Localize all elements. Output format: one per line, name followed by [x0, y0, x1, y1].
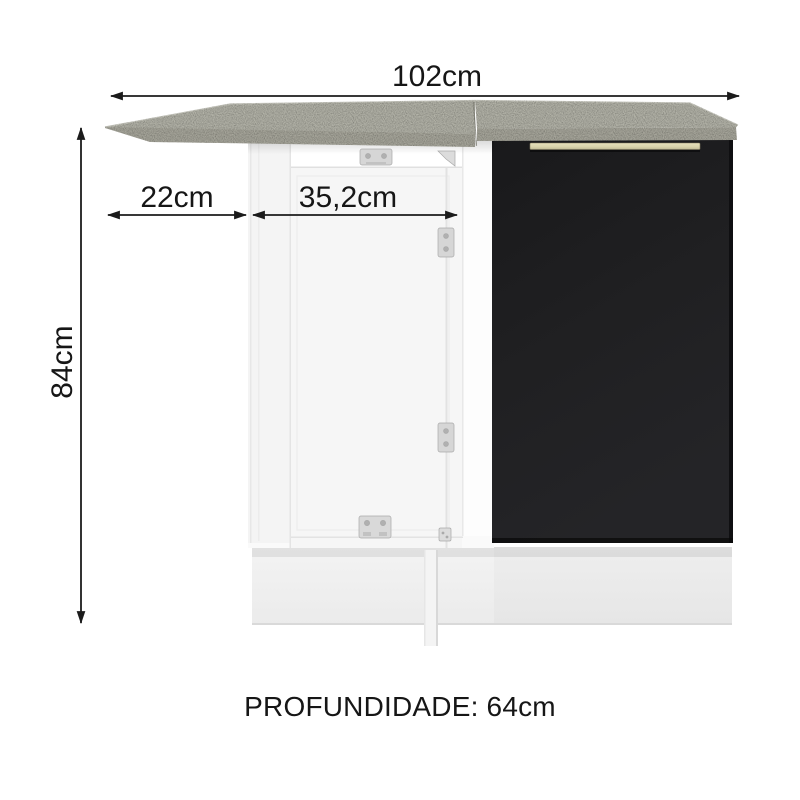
filler-left-edge [462, 141, 464, 536]
plinth-right-tint [494, 547, 732, 625]
black-door-group [492, 139, 733, 543]
height-dimension-label: 84cm [46, 325, 79, 398]
corner-bracket-icon [439, 528, 451, 541]
black-door-bottom-edge [492, 538, 733, 543]
countertop-right-front-edge [477, 128, 737, 142]
cabinet-leg-left-edge [424, 550, 426, 646]
hinge-icon [438, 423, 454, 452]
stile-door-gap-line [290, 141, 292, 548]
depth-label: PROFUNDIDADE: 64cm [244, 691, 556, 722]
hinge-icon [359, 516, 391, 538]
cabinet-leg-right-edge [436, 550, 438, 646]
width-dimension-label: 102cm [392, 60, 482, 93]
black-door [492, 139, 733, 543]
cabinet-leg [424, 550, 438, 646]
stile-edge-line [250, 141, 252, 543]
diagram-canvas: 102cm 22cm 35,2cm 84cm PROFUNDIDADE: 64c… [0, 0, 800, 800]
filler-strip [462, 141, 494, 536]
top-rail-shadow-line [291, 167, 462, 169]
door-handle [530, 143, 700, 150]
black-door-right-edge [729, 139, 733, 543]
plinth-base [252, 547, 732, 646]
door-width-dimension-label: 35,2cm [299, 181, 397, 214]
cabinet-dimension-diagram: 102cm 22cm 35,2cm 84cm PROFUNDIDADE: 64c… [0, 0, 800, 800]
handle-shadow [530, 150, 700, 153]
hinge-icon [360, 149, 392, 165]
white-door [291, 168, 462, 548]
blind-corner-stile [248, 141, 291, 543]
stile-inner-line [258, 143, 260, 541]
plinth-bottom-edge [252, 623, 732, 625]
countertop [105, 101, 738, 148]
overhang-dimension-label: 22cm [140, 181, 213, 214]
countertop-right-top-face [475, 101, 738, 129]
hinge-icon [438, 228, 454, 257]
white-door-right-shadow [446, 168, 448, 548]
